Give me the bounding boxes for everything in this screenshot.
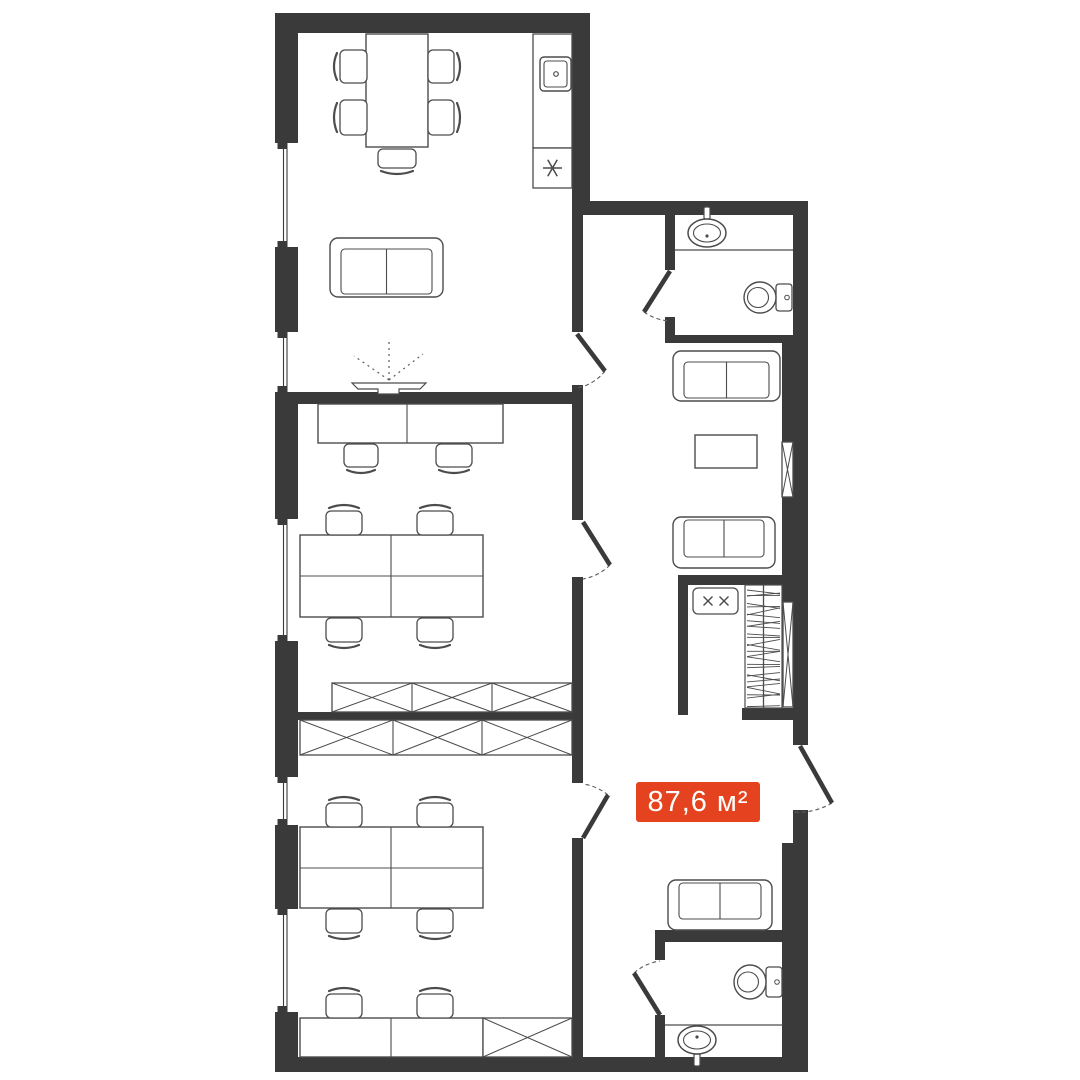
toilet [744, 282, 792, 313]
sofa [330, 238, 443, 297]
office-chair [417, 988, 453, 1018]
office-chair [417, 797, 453, 827]
window [278, 519, 299, 641]
office-chair [326, 909, 362, 939]
office-chair [326, 505, 362, 535]
toilet [734, 965, 782, 999]
room-bathroom-2 [665, 965, 783, 1066]
office-chair [417, 909, 453, 939]
office-chair [326, 797, 362, 827]
office-chair [417, 618, 453, 648]
meeting-table [300, 827, 483, 908]
window [278, 909, 299, 1012]
area-badge-label: 87,6 м² [647, 786, 748, 819]
room-office-1 [300, 404, 572, 712]
vent-shaft [782, 442, 793, 497]
room-bathroom-1 [675, 207, 793, 313]
entrance-door [794, 746, 832, 812]
wardrobe [332, 683, 572, 712]
area-badge: 87,6 м² [636, 782, 760, 822]
room-office-2 [300, 720, 572, 1057]
dining-chair [334, 50, 367, 83]
stove [533, 148, 572, 188]
dining-table [366, 34, 428, 147]
kitchen-sink [540, 57, 571, 91]
bathroom-2-door [634, 961, 660, 1015]
floorplan-page: 87,6 м² [0, 0, 1080, 1080]
coffee-table [695, 435, 757, 468]
shoe-cabinet [693, 588, 738, 614]
wall-desk [318, 404, 503, 443]
window [278, 332, 299, 392]
ceiling-light [352, 342, 426, 394]
sofa [673, 351, 780, 401]
office-chair [326, 988, 362, 1018]
bathroom-1-door [644, 271, 670, 321]
meeting-table [300, 535, 483, 617]
dining-chair [428, 100, 460, 135]
room-living-kitchen [330, 34, 572, 394]
sofa [668, 880, 772, 930]
office-chair [326, 618, 362, 648]
dining-chair [428, 50, 460, 83]
window [278, 777, 299, 825]
floorplan-canvas [0, 0, 1080, 1080]
office-2-door [583, 784, 608, 838]
office-chair [436, 444, 472, 473]
cabinet [483, 1018, 572, 1057]
office-chair [344, 444, 378, 473]
dining-chair [334, 100, 367, 135]
living-room-door [577, 334, 605, 388]
vent-shaft [783, 602, 793, 707]
clothes-rail [745, 585, 782, 708]
wall-desk [300, 1018, 483, 1057]
dining-chair [378, 149, 416, 174]
wardrobe [300, 720, 572, 755]
office-1-door [583, 522, 610, 579]
room-closet [693, 585, 782, 708]
sofa [673, 517, 775, 568]
window [278, 143, 299, 247]
office-chair [417, 505, 453, 535]
